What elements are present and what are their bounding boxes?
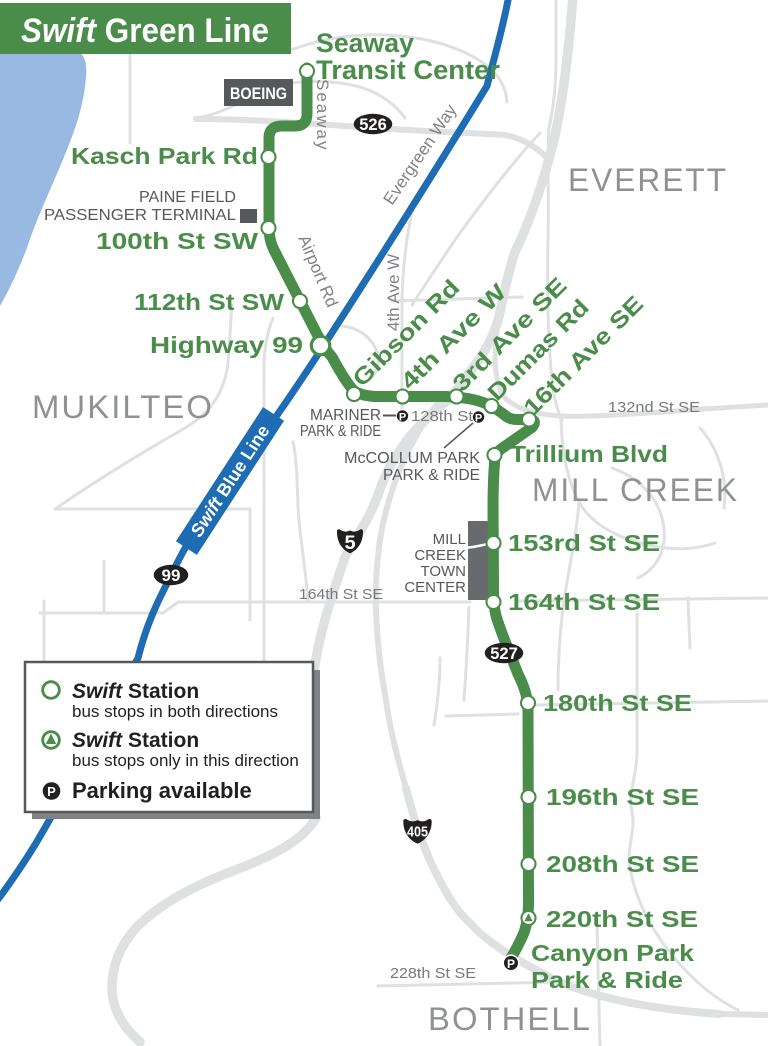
svg-text:132nd St SE: 132nd St SE xyxy=(608,399,700,416)
svg-text:P: P xyxy=(507,957,515,971)
svg-text:P: P xyxy=(475,413,482,425)
svg-text:228th St SE: 228th St SE xyxy=(390,965,476,982)
svg-text:Seaway: Seaway xyxy=(316,28,414,58)
svg-text:220th St SE: 220th St SE xyxy=(546,906,698,932)
svg-text:P: P xyxy=(399,412,406,424)
svg-text:CENTER: CENTER xyxy=(404,579,466,596)
svg-text:164th St SE: 164th St SE xyxy=(508,589,660,615)
svg-text:Kasch Park Rd: Kasch Park Rd xyxy=(71,143,258,169)
svg-text:Highway 99: Highway 99 xyxy=(150,332,303,358)
svg-text:PARK & RIDE: PARK & RIDE xyxy=(383,467,480,484)
svg-text:PASSENGER TERMINAL: PASSENGER TERMINAL xyxy=(44,207,236,224)
svg-text:527: 527 xyxy=(490,644,518,663)
svg-text:Swift Green Line: Swift Green Line xyxy=(21,12,269,50)
svg-text:MILL CREEK: MILL CREEK xyxy=(532,472,739,508)
svg-text:Canyon Park: Canyon Park xyxy=(531,940,694,966)
svg-text:99: 99 xyxy=(162,566,181,585)
svg-text:153rd St SE: 153rd St SE xyxy=(508,530,660,556)
svg-text:Park & Ride: Park & Ride xyxy=(531,967,683,993)
svg-text:CREEK: CREEK xyxy=(414,547,466,564)
svg-text:208th St SE: 208th St SE xyxy=(546,851,699,877)
svg-text:TOWN: TOWN xyxy=(420,563,466,580)
svg-text:MUKILTEO: MUKILTEO xyxy=(32,389,214,425)
svg-text:405: 405 xyxy=(407,824,428,841)
svg-text:Transit Center: Transit Center xyxy=(316,55,500,85)
svg-text:MILL: MILL xyxy=(433,531,466,548)
svg-text:112th St SW: 112th St SW xyxy=(134,289,284,315)
svg-text:Trillium Blvd: Trillium Blvd xyxy=(510,441,668,467)
svg-text:196th St SE: 196th St SE xyxy=(546,784,699,810)
svg-text:McCOLLUM PARK: McCOLLUM PARK xyxy=(344,450,480,467)
svg-text:100th St SW: 100th St SW xyxy=(96,228,258,254)
svg-text:180th St SE: 180th St SE xyxy=(543,690,692,716)
svg-text:P: P xyxy=(47,784,56,799)
svg-text:128th St: 128th St xyxy=(411,408,474,425)
svg-text:164th St SE: 164th St SE xyxy=(299,586,383,603)
svg-text:526: 526 xyxy=(359,115,387,134)
svg-text:bus stops in both directions: bus stops in both directions xyxy=(72,702,278,721)
svg-text:PAINE FIELD: PAINE FIELD xyxy=(139,189,236,206)
svg-text:Seaway: Seaway xyxy=(313,79,332,151)
svg-text:BOEING: BOEING xyxy=(230,84,287,103)
svg-text:BOTHELL: BOTHELL xyxy=(428,1001,592,1037)
svg-text:PARK & RIDE: PARK & RIDE xyxy=(300,423,381,440)
svg-text:5: 5 xyxy=(344,532,355,554)
svg-text:Swift Station: Swift Station xyxy=(72,729,199,752)
svg-text:Swift Station: Swift Station xyxy=(72,680,199,703)
svg-text:Parking available: Parking available xyxy=(72,778,252,803)
svg-text:MARINER: MARINER xyxy=(310,407,381,424)
svg-text:EVERETT: EVERETT xyxy=(568,162,728,198)
svg-text:bus stops only in this directi: bus stops only in this direction xyxy=(72,751,299,770)
